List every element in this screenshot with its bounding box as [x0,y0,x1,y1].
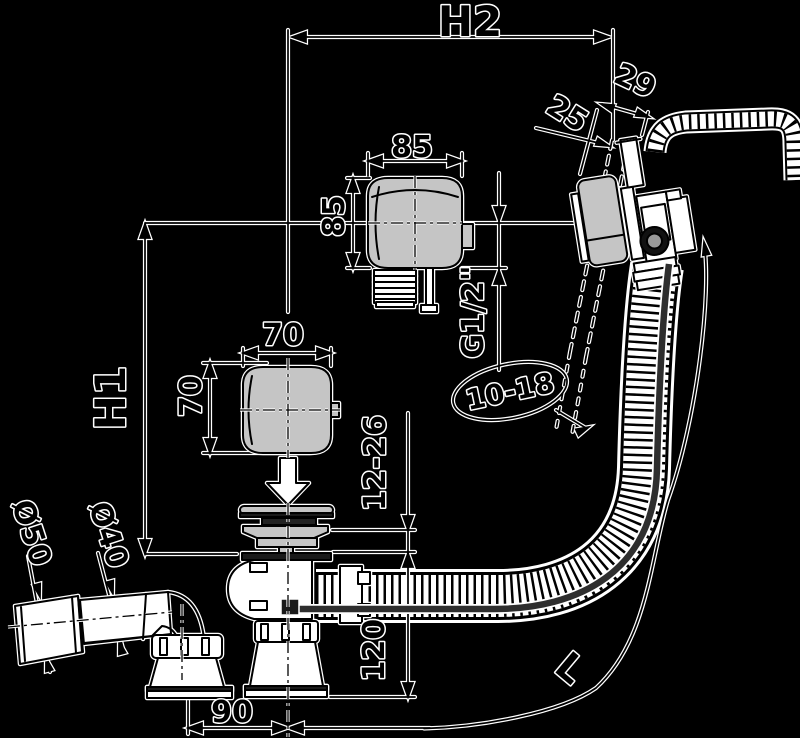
dim-85-width-label: 85 [391,130,433,165]
dim-90-label: 90 [211,695,253,730]
dim-85-height-label: 85 [317,195,352,237]
dim-70-width-label: 70 [262,318,304,353]
technical-drawing: H2 H1 85 85 G1/2" 70 70 10-18 25 29 12-2… [0,0,800,738]
dim-70-height-label: 70 [174,375,209,417]
thread-size-label: G1/2" [456,266,491,359]
plug-gap-label: 12-26 [358,415,393,511]
technical-drawing-canvas: H2 H1 85 85 G1/2" 70 70 10-18 25 29 12-2… [0,0,800,738]
dim-h1-label: H1 [86,366,135,430]
dim-h2-label: H2 [438,0,502,46]
dim-120-label: 120 [357,619,392,682]
